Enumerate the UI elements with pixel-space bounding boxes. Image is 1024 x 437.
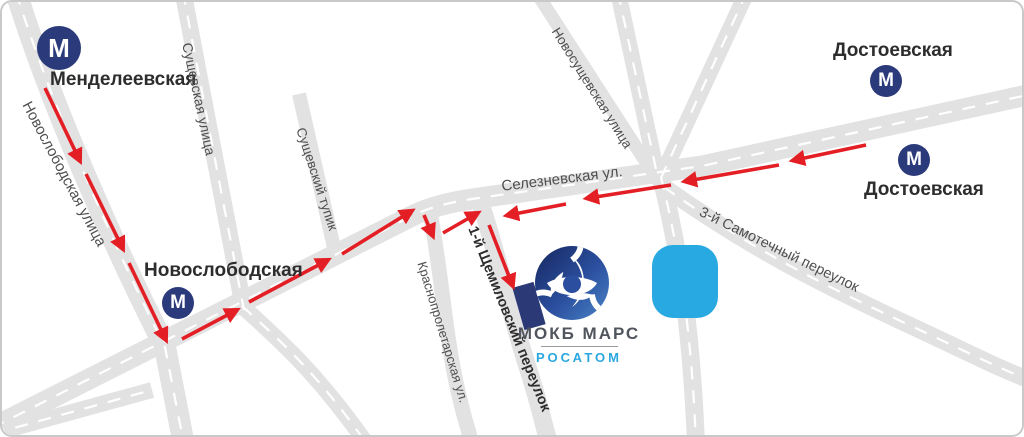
station-label-novoslobodskaya: Новослободская (144, 260, 303, 282)
landmark-block (652, 245, 718, 318)
metro-icon-mendeleevskaya: М (37, 26, 81, 70)
organization-brand: РОСАТОМ (536, 350, 622, 365)
station-label-dostoevskaya-top: Достоевская (833, 40, 953, 62)
metro-icon-novoslobodskaya: М (162, 287, 194, 319)
organization-name: МОКБ МАРС (518, 324, 640, 344)
metro-icon-dostoevskaya-top: М (870, 65, 902, 97)
station-label-dostoevskaya-right: Достоевская (864, 179, 984, 201)
map-canvas (2, 2, 1022, 435)
route-map: М М М М Менделеевская Новослободская Дос… (0, 0, 1024, 437)
organization-divider (541, 346, 618, 347)
roads-layer (2, 2, 1022, 435)
metro-icon-dostoevskaya-right: М (898, 144, 930, 176)
road-centerlines (2, 2, 1022, 435)
station-label-mendeleevskaya: Менделеевская (50, 69, 196, 91)
rosatom-logo (529, 238, 611, 320)
